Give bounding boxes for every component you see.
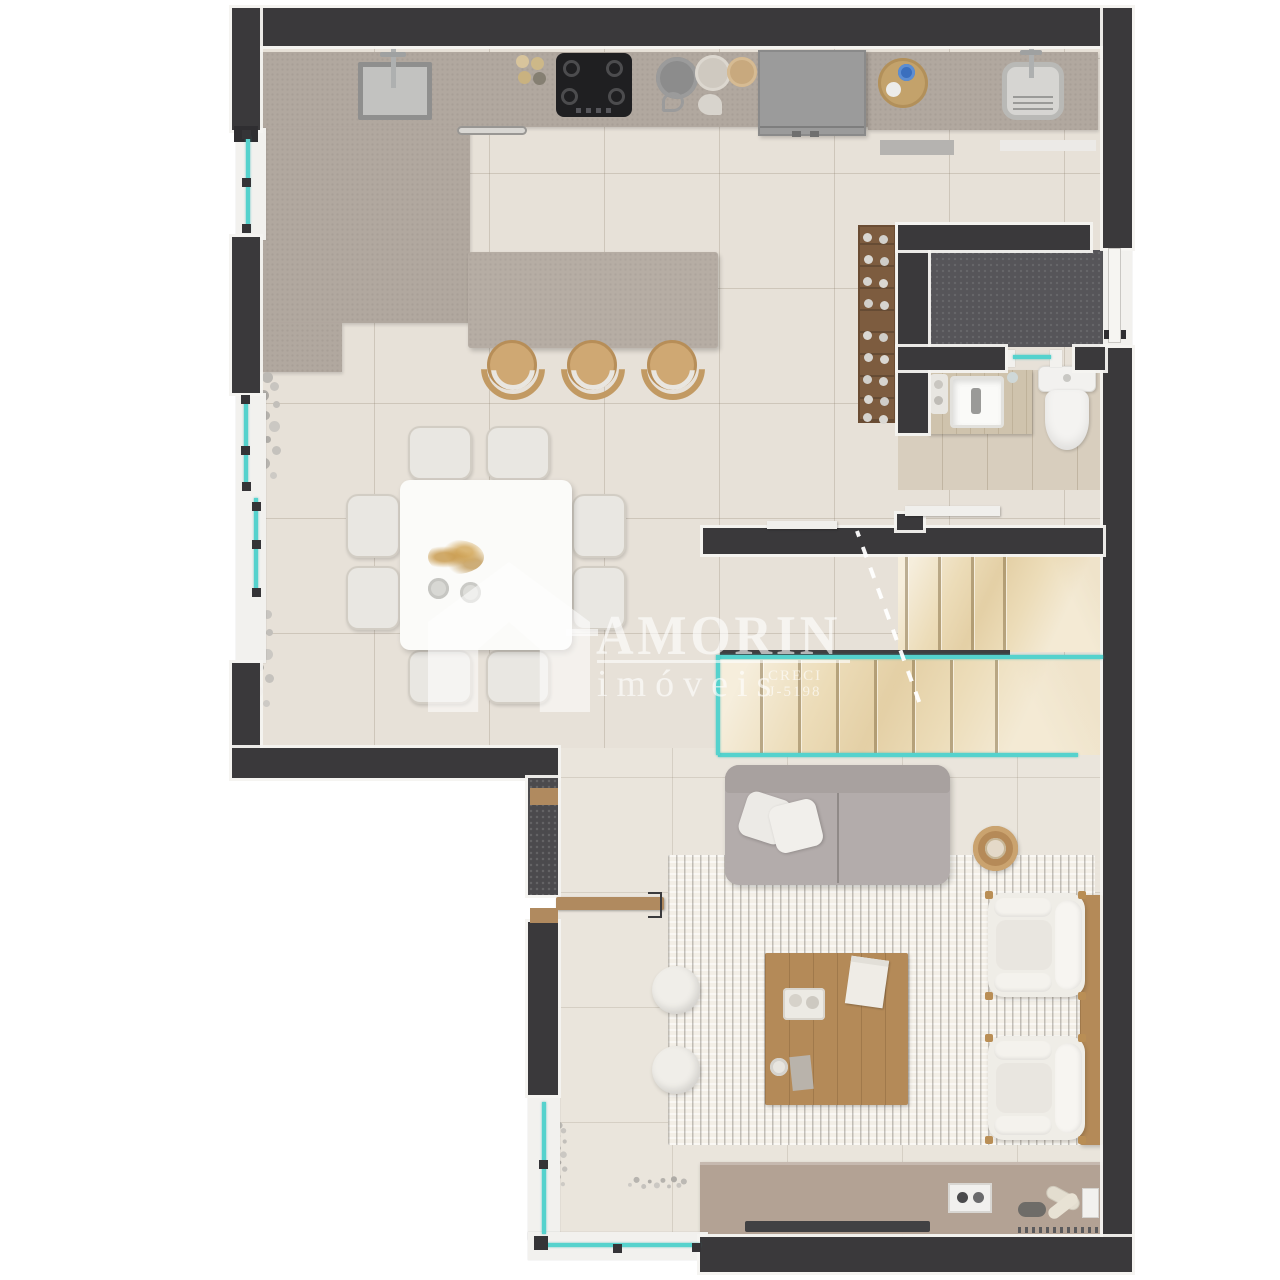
coffee-table-board bbox=[789, 1055, 813, 1091]
white-cup bbox=[886, 82, 901, 97]
wall-living-left-lower bbox=[528, 922, 558, 1095]
door-jamb-wood bbox=[530, 908, 558, 923]
blue-cup bbox=[898, 64, 915, 81]
dining-chair bbox=[346, 494, 400, 558]
stairs-glass-rail-bottom bbox=[718, 753, 1078, 757]
kitchen-counter-peninsula bbox=[260, 127, 470, 323]
coffee-table-books bbox=[845, 956, 889, 1009]
cabinet-handle bbox=[457, 126, 527, 135]
vanity-soap bbox=[934, 396, 943, 405]
refrigerator-handles bbox=[792, 131, 822, 137]
refrigerator-door-split bbox=[760, 126, 864, 128]
wall-shelf-small bbox=[767, 521, 837, 529]
sofa-cushion-split bbox=[837, 793, 839, 883]
vanity-faucet bbox=[971, 388, 981, 414]
wine-rack bbox=[858, 225, 896, 423]
bath-glass-cup bbox=[1007, 372, 1018, 383]
outlet-plate bbox=[948, 1183, 992, 1213]
storage-room-floor bbox=[928, 250, 1103, 347]
decor-box bbox=[1082, 1188, 1099, 1218]
pitcher bbox=[662, 92, 684, 112]
window-left-slider-sill bbox=[236, 393, 266, 663]
outlet-socket bbox=[957, 1192, 968, 1203]
laundry-tank-ribs bbox=[1013, 92, 1053, 110]
coffee-table-candle bbox=[770, 1058, 788, 1076]
entry-door-leaf bbox=[1108, 248, 1121, 343]
tray-cup bbox=[789, 994, 802, 1007]
dining-chair bbox=[572, 494, 626, 558]
kitchen-counter-peninsula-low bbox=[260, 323, 342, 372]
pouf bbox=[652, 966, 700, 1014]
wall-storage-top bbox=[898, 225, 1090, 250]
cooktop-knobs bbox=[576, 108, 612, 113]
armchair bbox=[988, 893, 1085, 997]
wall-bath-top-left bbox=[898, 347, 1005, 370]
wall-storage-left bbox=[898, 225, 928, 433]
dish-stack bbox=[727, 57, 757, 87]
stairs-upper-flight bbox=[898, 552, 1103, 652]
window-left-upper-sill bbox=[236, 128, 266, 240]
wall-dining-bottom bbox=[232, 748, 558, 778]
stairs-lower-flight bbox=[718, 655, 1103, 755]
floor-plan: AMORIN imóveis CRECI J-5198 bbox=[0, 0, 1280, 1280]
wall-left-mid bbox=[232, 237, 260, 393]
table-centerpiece-plant bbox=[428, 540, 484, 574]
entry-door-handle-2 bbox=[1121, 330, 1126, 339]
dining-chair bbox=[408, 426, 472, 480]
armchair bbox=[988, 1036, 1085, 1140]
wine-bottles bbox=[863, 233, 872, 242]
wall-stairs-top bbox=[703, 528, 1103, 554]
remote-control bbox=[1018, 1202, 1046, 1217]
door-jamb-wood bbox=[530, 788, 558, 805]
dining-chair bbox=[346, 566, 400, 630]
window-left-slider-pane1 bbox=[244, 398, 248, 486]
window-bottom-glass bbox=[545, 1243, 700, 1247]
stairs-glass-rail-mid bbox=[720, 655, 1103, 659]
dining-chair bbox=[408, 650, 472, 704]
laundry-faucet-handle bbox=[1020, 50, 1042, 55]
wall-stairs-notch bbox=[897, 514, 923, 530]
dining-chair bbox=[486, 426, 550, 480]
dining-table bbox=[400, 480, 572, 650]
wall-shelf bbox=[905, 506, 1000, 516]
vanity-soap bbox=[934, 380, 943, 389]
wall-right-upper bbox=[1103, 8, 1132, 248]
kitchen-island bbox=[468, 252, 718, 348]
tv bbox=[745, 1221, 930, 1232]
burner bbox=[606, 60, 623, 77]
dish-stack bbox=[695, 55, 731, 91]
side-table-center bbox=[985, 838, 1006, 859]
wall-bottom bbox=[700, 1237, 1132, 1272]
dining-chair bbox=[572, 566, 626, 630]
living-door-latch bbox=[648, 892, 662, 918]
appliance-front bbox=[880, 140, 954, 155]
bath-door-frame-right bbox=[1050, 350, 1062, 367]
table-plate bbox=[460, 582, 481, 603]
vent-grille bbox=[1018, 1227, 1102, 1233]
toilet-flush-button bbox=[1063, 374, 1071, 382]
plant-decor bbox=[262, 372, 312, 482]
plant-decor bbox=[673, 1179, 687, 1223]
outlet-socket bbox=[973, 1192, 984, 1203]
pitcher bbox=[698, 94, 722, 115]
toilet-bowl bbox=[1045, 390, 1089, 450]
bath-glass-door bbox=[1013, 355, 1051, 359]
dining-chair bbox=[486, 650, 550, 704]
burner bbox=[561, 88, 578, 105]
wall-top bbox=[232, 8, 1132, 46]
tray-cup bbox=[806, 996, 819, 1009]
kitchen-faucet-handle bbox=[380, 52, 406, 57]
counter-shelf bbox=[1000, 140, 1096, 151]
wall-left-low bbox=[232, 663, 260, 748]
wall-left-top bbox=[232, 8, 260, 130]
table-plate bbox=[428, 578, 449, 599]
pouf bbox=[652, 1046, 700, 1094]
sofa-backrest bbox=[725, 765, 950, 793]
stairs-glass-rail-left bbox=[716, 655, 720, 755]
wall-bath-top-right bbox=[1075, 347, 1105, 370]
burner bbox=[563, 60, 580, 77]
spice-jars bbox=[516, 55, 552, 91]
burner bbox=[608, 88, 625, 105]
refrigerator bbox=[758, 50, 866, 136]
wall-right-main bbox=[1103, 348, 1132, 1272]
entry-door-handle bbox=[1104, 330, 1109, 339]
